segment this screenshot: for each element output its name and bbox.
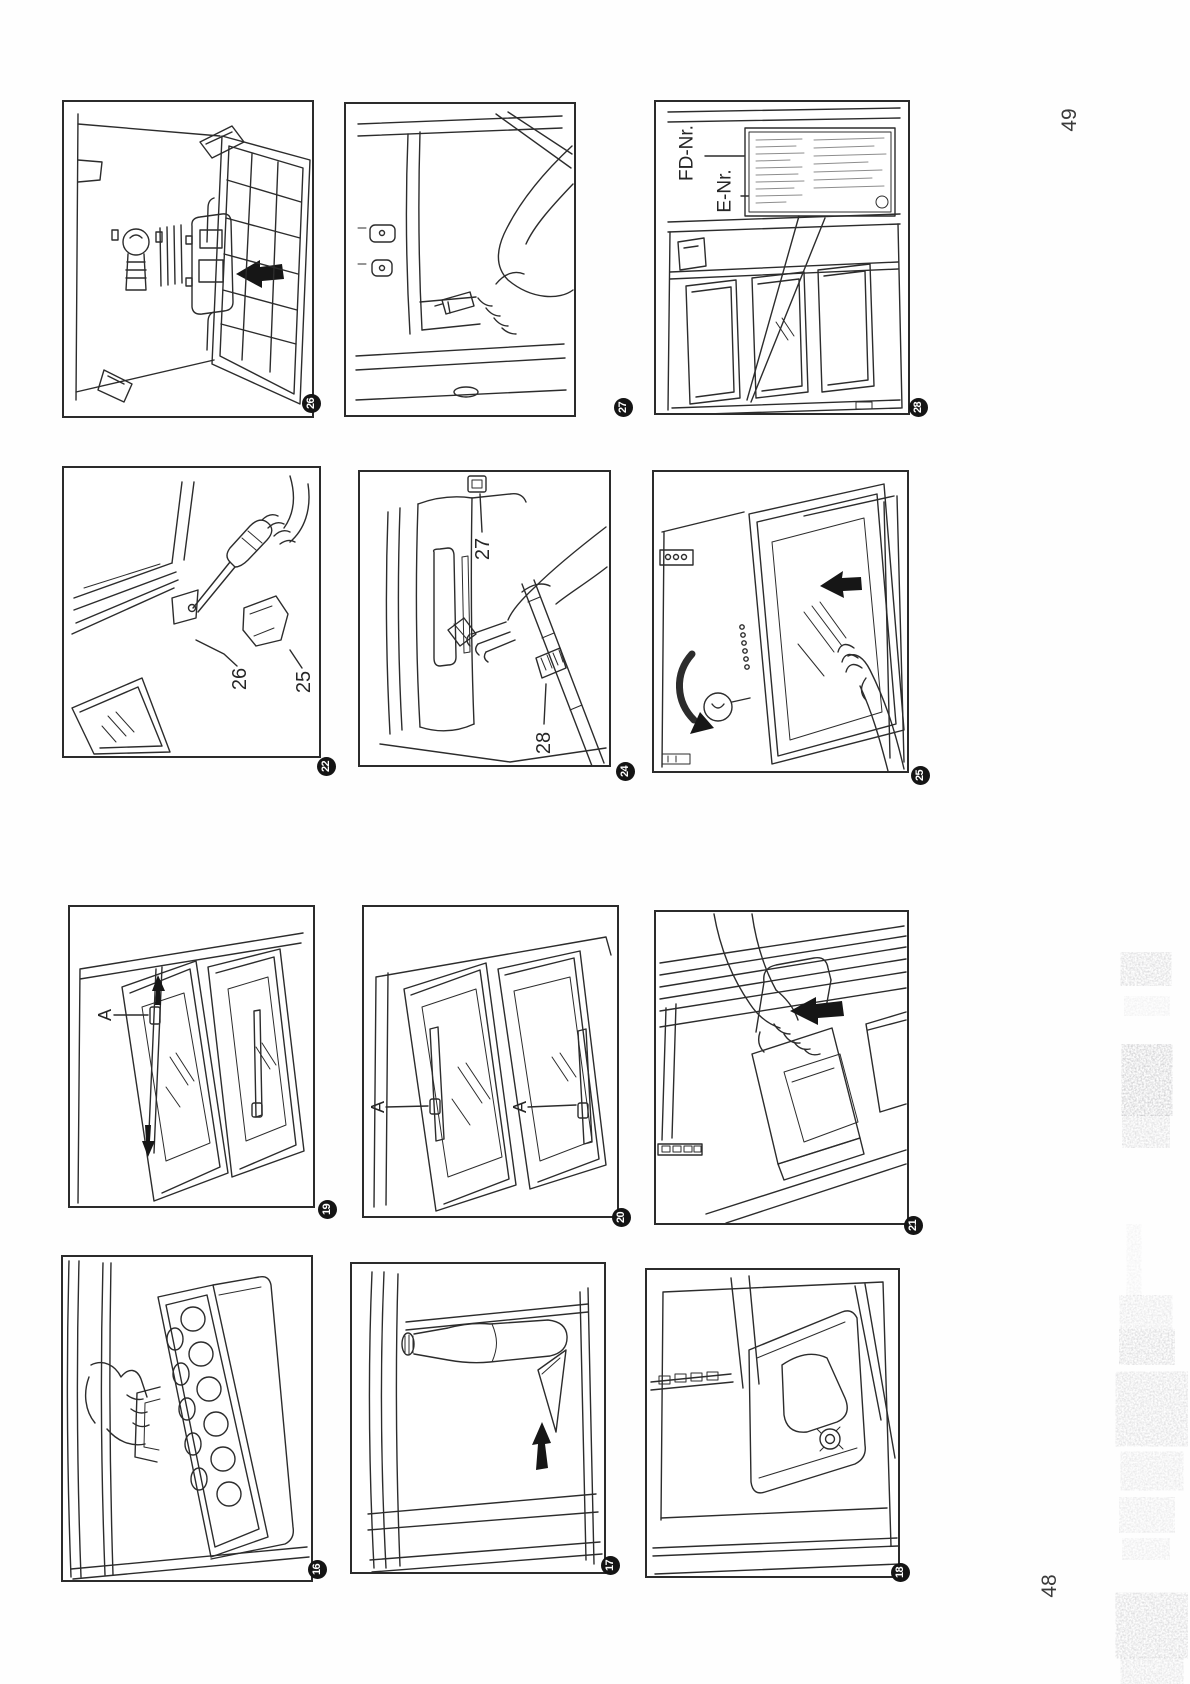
- arrow-left-icon: [790, 997, 844, 1025]
- door-band: [67, 1261, 113, 1577]
- figure-badge-24: 24: [616, 762, 635, 781]
- door-bottom-edges: [356, 344, 566, 400]
- chest-front-edge: [706, 1150, 906, 1223]
- leader-27: [480, 494, 482, 532]
- vent-grille: [660, 926, 906, 1027]
- scanned-manual-page: { "page": { "top_page_number": "49", "bo…: [0, 0, 1190, 1684]
- clip-label-a-left: A: [369, 1101, 387, 1113]
- fig18-illustration: [647, 1270, 898, 1576]
- cabinet-frame: [374, 937, 611, 1207]
- shelf-bottom: [368, 1288, 602, 1572]
- bottle-icon: [402, 1320, 567, 1363]
- screwdriver: [193, 520, 272, 612]
- cover-cap: [243, 596, 288, 646]
- glass-door: [740, 484, 904, 764]
- figure-badge-17: 17: [601, 1556, 620, 1575]
- fig20-illustration: [364, 907, 617, 1216]
- figure-badge-25: 25: [911, 766, 930, 785]
- arrow-right-icon: [820, 571, 862, 598]
- bottle-icon: [782, 1354, 847, 1451]
- figure-panel-19: A: [68, 905, 315, 1208]
- figure-panel-16: [61, 1255, 313, 1582]
- part-label-26: 26: [230, 668, 250, 690]
- shelf-top-rail: [406, 1304, 588, 1330]
- leader-a-left: [386, 1106, 428, 1107]
- figure-panel-21: [654, 910, 909, 1225]
- floor-edge: [380, 744, 606, 762]
- door-clip: [150, 1007, 160, 1024]
- shelf-bin: [71, 1277, 309, 1579]
- e-number-label: E-Nr.: [716, 169, 735, 212]
- leader-a-right: [528, 1105, 576, 1107]
- door-inner-face: [386, 497, 474, 734]
- figure-panel-17: [350, 1262, 606, 1574]
- figure-panel-20: A A: [362, 905, 619, 1218]
- figure-badge-22: 22: [317, 757, 336, 776]
- right-glass-door: [208, 949, 304, 1177]
- fig26-illustration: [64, 102, 312, 416]
- egg-tray: [135, 1285, 268, 1557]
- scan-noise-artifacts: [1108, 884, 1188, 1684]
- clip-label-a: A: [96, 1009, 114, 1021]
- interior-lamp-socket: [435, 292, 474, 314]
- hand: [86, 1363, 149, 1445]
- locking-knob: [704, 693, 750, 721]
- door-top-edges: [358, 116, 562, 136]
- fig24-illustration: [360, 472, 609, 765]
- fig22-illustration: [64, 468, 319, 756]
- figure-badge-16: 16: [308, 1560, 327, 1579]
- fig25-illustration: [654, 472, 907, 771]
- figure-badge-20: 20: [612, 1208, 631, 1227]
- divider-flap: [538, 1350, 566, 1432]
- figure-badge-19: 19: [318, 1200, 337, 1219]
- left-glass-door: [404, 963, 516, 1211]
- leader-25: [290, 650, 302, 668]
- figure-badge-26: 26: [302, 394, 321, 413]
- bottle-holder: [749, 1311, 865, 1493]
- glass-window: [72, 678, 170, 754]
- fig19-illustration: [70, 907, 313, 1206]
- vent-slots: [160, 225, 182, 286]
- figure-panel-26: [62, 100, 314, 418]
- door-frame: [661, 1276, 895, 1546]
- part-label-28: 28: [534, 732, 554, 754]
- part-label-25: 25: [294, 671, 314, 693]
- door-band: [369, 1272, 400, 1568]
- hand-holding-bulb: [478, 146, 573, 334]
- fig16-illustration: [63, 1257, 311, 1580]
- fig21-illustration: [656, 912, 907, 1223]
- figure-badge-28: 28: [909, 398, 928, 417]
- figure-panel-18: [645, 1268, 900, 1578]
- hand-on-screwdriver: [262, 476, 309, 544]
- storage-tray: [752, 958, 864, 1180]
- door-bottom-bands: [653, 1508, 898, 1574]
- shelf-rail: [651, 1372, 733, 1390]
- door-corner: [72, 482, 198, 634]
- fig27-illustration: [346, 104, 574, 415]
- leader-28: [544, 684, 546, 724]
- second-tray: [866, 1012, 906, 1112]
- cabinet-body: [668, 214, 902, 413]
- figure-panel-24: 27 28: [358, 470, 611, 767]
- sealing-strip: [536, 648, 566, 678]
- mounting-clip: [468, 476, 526, 502]
- leader-26: [196, 640, 237, 666]
- figure-panel-27: [344, 102, 576, 417]
- clip-label-a-right: A: [511, 1101, 529, 1113]
- figure-badge-21: 21: [904, 1216, 923, 1235]
- page-number-49: 49: [1058, 108, 1082, 131]
- lid-top-edges: [668, 108, 900, 122]
- figure-panel-28: FD-Nr. E-Nr.: [654, 100, 910, 415]
- light-bulb-icon: [112, 229, 162, 290]
- right-glass-door: [498, 951, 606, 1189]
- fig17-illustration: [352, 1264, 604, 1572]
- page-number-48: 48: [1038, 1574, 1062, 1597]
- figure-badge-18: 18: [891, 1563, 910, 1582]
- arrow-up-icon: [532, 1422, 551, 1470]
- figure-badge-27: 27: [614, 398, 633, 417]
- part-label-27: 27: [473, 538, 493, 560]
- fd-number-label: FD-Nr.: [678, 125, 697, 181]
- interior-diagonals: [496, 112, 572, 168]
- figure-panel-22: 26 25: [62, 466, 321, 758]
- figure-panel-25: [652, 470, 909, 773]
- hand-arm: [714, 914, 820, 1055]
- rotation-arrow-icon: [679, 654, 714, 734]
- plate-pointer-lines: [747, 216, 825, 402]
- latch-buttons: [358, 225, 395, 276]
- rating-plate: [745, 128, 895, 216]
